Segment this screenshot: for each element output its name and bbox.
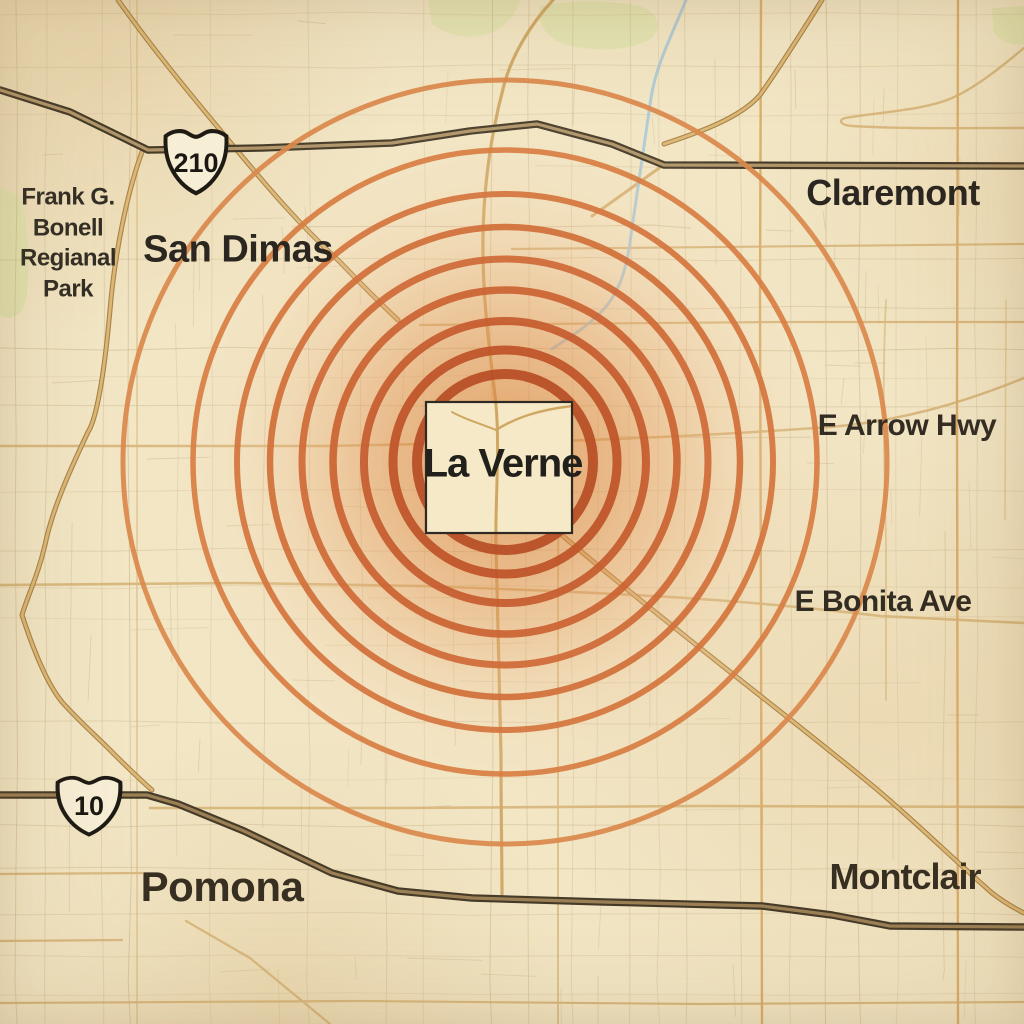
- grid-street: [920, 433, 922, 516]
- grid-street: [0, 867, 1024, 870]
- park-area-top-a: [428, 0, 520, 37]
- grid-street: [976, 852, 1024, 853]
- map-canvas: 210 10 Frank G. Bonell Regianal Park San…: [0, 0, 1024, 1024]
- park-area-top-right: [992, 6, 1024, 45]
- grid-street: [561, 988, 562, 1024]
- grid-street: [974, 0, 978, 1024]
- grid-street: [964, 961, 966, 1019]
- grid-street: [101, 0, 104, 1024]
- grid-street: [407, 958, 482, 960]
- grid-street: [44, 0, 47, 1024]
- park-area-top-b: [539, 2, 657, 50]
- grid-street: [598, 905, 601, 949]
- road-horizontal-873: [0, 873, 142, 874]
- grid-street: [733, 964, 736, 1017]
- grid-street: [389, 855, 425, 856]
- grid-street: [130, 725, 160, 727]
- grid-street: [298, 21, 326, 24]
- grid-street: [69, 522, 72, 912]
- park-area-left: [0, 188, 28, 318]
- grid-street: [15, 0, 18, 1024]
- la-verne-box-fill: [426, 402, 572, 533]
- road-zigzag-right: [841, 48, 1024, 128]
- map-graphics: 210 10: [0, 0, 1024, 1024]
- i210-shield-number: 210: [173, 148, 218, 178]
- grid-street: [992, 557, 1024, 559]
- i10-shield-number: 10: [74, 791, 104, 821]
- grid-street: [355, 957, 356, 979]
- grid-street: [88, 635, 91, 701]
- grid-street: [883, 88, 884, 122]
- grid-street: [0, 955, 1024, 957]
- grid-street: [278, 969, 281, 1024]
- grid-street: [969, 481, 971, 549]
- grid-street: [198, 739, 200, 772]
- grid-street: [0, 993, 1024, 996]
- grid-street: [0, 913, 1024, 916]
- grid-street: [52, 380, 104, 383]
- road-vertical-958: [957, 0, 958, 1024]
- grid-street: [795, 70, 796, 109]
- grid-street: [481, 974, 536, 976]
- road-horizontal-941: [0, 940, 122, 941]
- road-vertical-1006: [1005, 300, 1006, 520]
- i210-shield: 210: [165, 131, 226, 193]
- road-horizontal-1002: [0, 1001, 1024, 1004]
